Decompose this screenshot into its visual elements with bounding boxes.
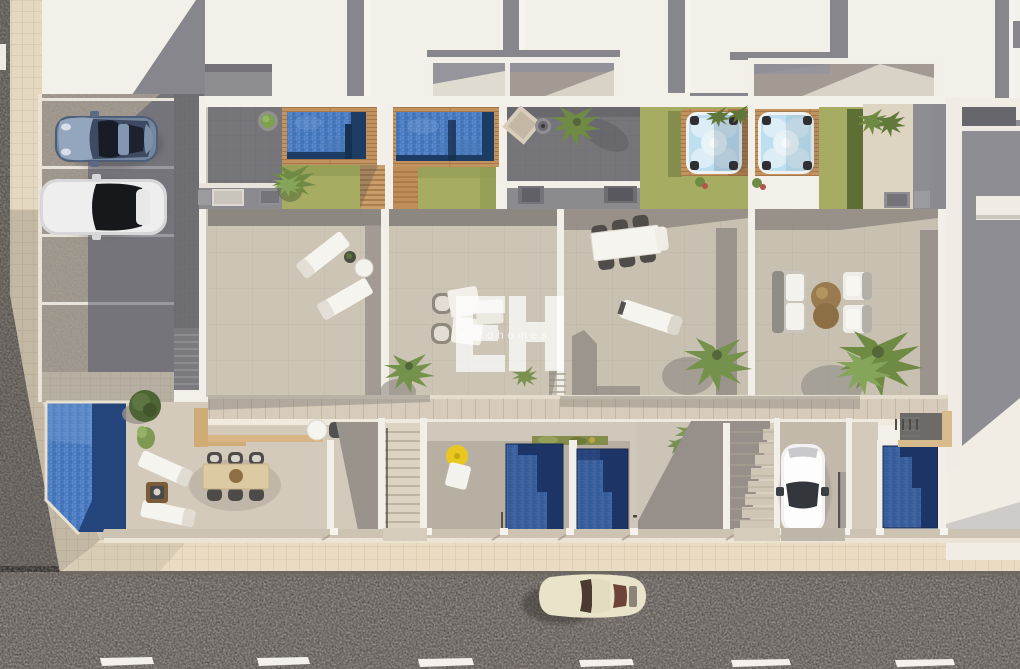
svg-text:eurohomes: eurohomes — [459, 330, 551, 342]
